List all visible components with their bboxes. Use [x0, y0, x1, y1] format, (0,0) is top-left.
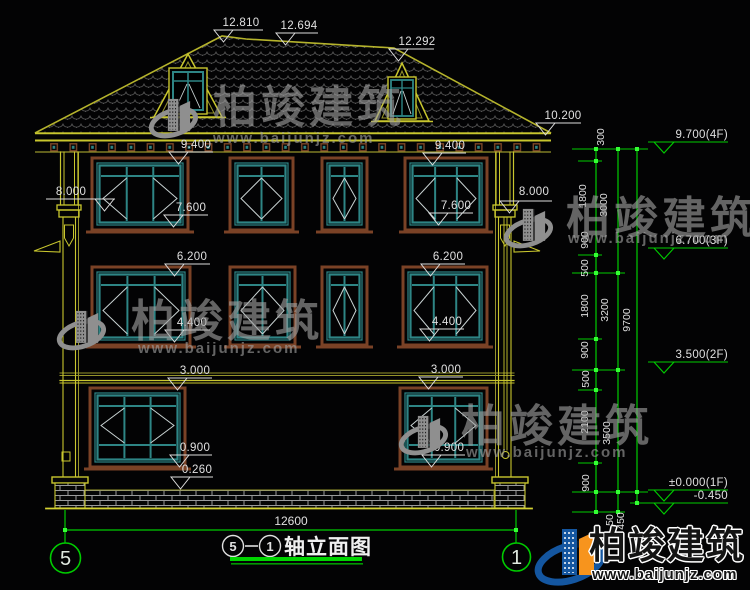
title-text: 轴立面图	[284, 535, 372, 559]
title-axis-a: 5	[229, 539, 236, 554]
chain-dim-text: 500	[579, 259, 591, 277]
elevation-dim-text: 10.200	[545, 110, 582, 122]
eave-band	[35, 134, 551, 153]
level-flag: 6.700(3F)	[648, 235, 728, 259]
elevation-dim-text: 3.000	[180, 365, 210, 377]
chain-dim-text: 450	[615, 512, 627, 530]
axis-bubble-right-label: 1	[511, 547, 522, 569]
level-flag-text: 9.700(4F)	[675, 129, 728, 141]
window	[316, 267, 373, 347]
axis-bubble-left-label: 5	[60, 548, 71, 570]
elevation-dim-text: 4.400	[432, 316, 462, 328]
chain-dim-text: 9700	[621, 308, 633, 332]
level-flag-text: 6.700(3F)	[675, 235, 728, 247]
title-underline	[230, 557, 362, 561]
elevation-dim-text: 9.400	[435, 140, 465, 152]
chain-dim-text: 1800	[579, 294, 591, 318]
chain-dim-text: 50	[604, 514, 616, 526]
window	[224, 158, 299, 232]
elevation-canvas: 12.81012.69412.29210.2009.4009.4008.0008…	[0, 0, 750, 590]
window	[84, 388, 191, 469]
chain-dim-text: 1800	[577, 184, 589, 208]
level-flag-text: -0.450	[694, 490, 728, 502]
level-flag: 9.700(4F)	[648, 129, 728, 153]
chain-dim-text: 3500	[601, 421, 613, 445]
right-dimension-chain: 3001800300090050018003200970090050021003…	[572, 128, 648, 530]
windows	[84, 158, 493, 469]
chain-dim-text: 2100	[579, 410, 591, 434]
window	[224, 267, 301, 347]
level-flag: 3.500(2F)	[648, 349, 728, 373]
elevation-dim-text: 9.400	[181, 139, 211, 151]
elevation-dim-label: 12.694	[276, 20, 318, 45]
level-flag-text: ±0.000(1F)	[669, 477, 728, 489]
window	[394, 388, 493, 469]
level-flag-text: 3.500(2F)	[675, 349, 728, 361]
cad-elevation-drawing: 12.81012.69412.29210.2009.4009.4008.0008…	[0, 0, 750, 590]
elevation-dim-label: 3.000	[168, 365, 212, 390]
elevation-dim-label: 4.400	[165, 317, 210, 342]
bottom-annotations: 12600 5 1 5 1 轴立面图	[51, 510, 531, 573]
chain-dim-text: 3000	[598, 193, 610, 217]
elevation-dim-text: 12.694	[281, 20, 318, 32]
overall-width-dim: 12600	[274, 514, 308, 528]
elevation-dim-text: 0.900	[434, 442, 464, 454]
pilaster-left	[34, 152, 81, 477]
elevation-dim-label: 3.000	[419, 364, 463, 389]
chain-dim-text: 900	[579, 231, 591, 249]
chain-dim-text: 900	[580, 474, 592, 492]
level-flags: 9.700(4F)6.700(3F)3.500(2F)±0.000(1F)-0.…	[648, 129, 728, 514]
roof-outline	[35, 36, 551, 133]
elevation-dim-text: 12.810	[223, 17, 260, 29]
elevation-dim-text: 0.900	[180, 442, 210, 454]
elevation-dim-text: 0.260	[182, 464, 212, 476]
chain-dim-text: 900	[579, 341, 591, 359]
elevation-dim-text: 3.000	[431, 364, 461, 376]
title-axis-b: 1	[266, 539, 273, 554]
roof	[35, 36, 551, 133]
drawing-title: 5 1 轴立面图	[223, 535, 373, 565]
elevation-dim-label: 9.400	[169, 139, 213, 164]
chain-dim-text: 3200	[599, 298, 611, 322]
elevation-dim-label: 8.000	[500, 186, 552, 213]
elevation-dim-text: 8.000	[56, 186, 86, 198]
chain-dim-text: 300	[595, 128, 607, 146]
window	[397, 267, 493, 347]
window	[399, 158, 493, 232]
plinth	[46, 477, 532, 509]
level-flag: -0.450	[648, 490, 728, 514]
elevation-dim-text: 4.400	[177, 317, 207, 329]
elevation-dim-text: 6.200	[433, 251, 463, 263]
elevation-dim-text: 7.600	[441, 200, 471, 212]
elevation-dim-label: 7.600	[164, 202, 208, 227]
elevation-dim-text: 8.000	[519, 186, 549, 198]
chain-dim-text: 500	[580, 370, 592, 388]
elevation-dim-label: 10.200	[536, 110, 581, 135]
elevation-dim-text: 7.600	[176, 202, 206, 214]
elevation-dim-text: 12.292	[399, 36, 436, 48]
window	[316, 158, 373, 232]
elevation-dim-label: 6.200	[165, 251, 210, 276]
elevation-dim-text: 6.200	[177, 251, 207, 263]
